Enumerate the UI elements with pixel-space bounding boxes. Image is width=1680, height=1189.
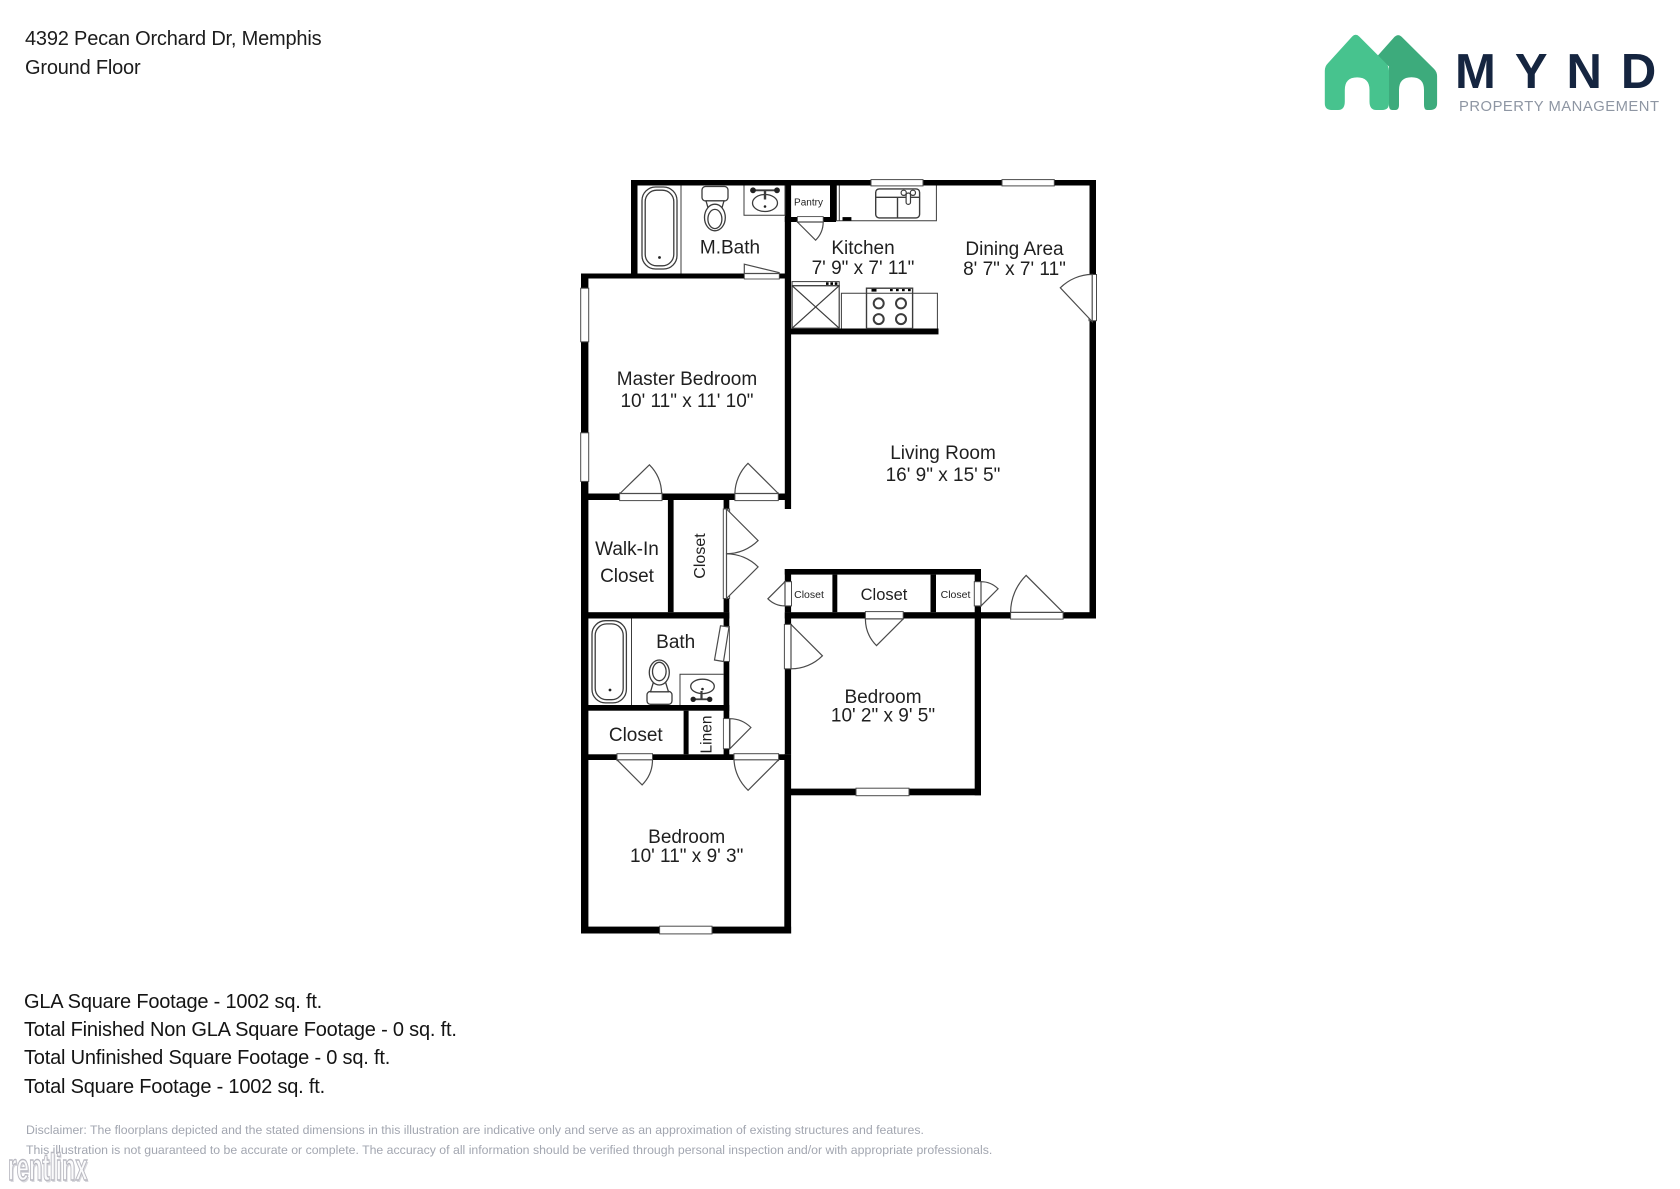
- svg-text:Linen: Linen: [699, 716, 716, 754]
- svg-text:Living Room: Living Room: [890, 443, 996, 464]
- svg-text:Closet: Closet: [692, 533, 709, 579]
- svg-text:10' 2" x 9' 5": 10' 2" x 9' 5": [831, 706, 935, 727]
- svg-text:Kitchen: Kitchen: [831, 238, 894, 259]
- svg-text:Closet: Closet: [941, 589, 971, 601]
- svg-text:Master Bedroom: Master Bedroom: [617, 369, 757, 390]
- svg-text:Dining Area: Dining Area: [965, 239, 1064, 260]
- svg-text:M.Bath: M.Bath: [700, 238, 760, 259]
- svg-text:Closet: Closet: [861, 586, 908, 604]
- svg-text:16' 9" x 15' 5": 16' 9" x 15' 5": [886, 465, 1001, 486]
- svg-text:Closet: Closet: [794, 589, 824, 601]
- svg-text:10' 11" x 11' 10": 10' 11" x 11' 10": [620, 391, 753, 412]
- svg-text:10' 11" x 9' 3": 10' 11" x 9' 3": [630, 846, 743, 867]
- svg-text:7' 9" x 7' 11": 7' 9" x 7' 11": [812, 258, 915, 279]
- svg-text:Bath: Bath: [656, 632, 695, 653]
- svg-text:Pantry: Pantry: [794, 198, 823, 209]
- svg-text:Closet: Closet: [609, 725, 664, 746]
- svg-text:Closet: Closet: [600, 566, 655, 587]
- svg-text:8' 7" x 7' 11": 8' 7" x 7' 11": [963, 259, 1066, 280]
- svg-text:Walk-In: Walk-In: [595, 539, 659, 560]
- svg-text:Bedroom: Bedroom: [648, 827, 725, 848]
